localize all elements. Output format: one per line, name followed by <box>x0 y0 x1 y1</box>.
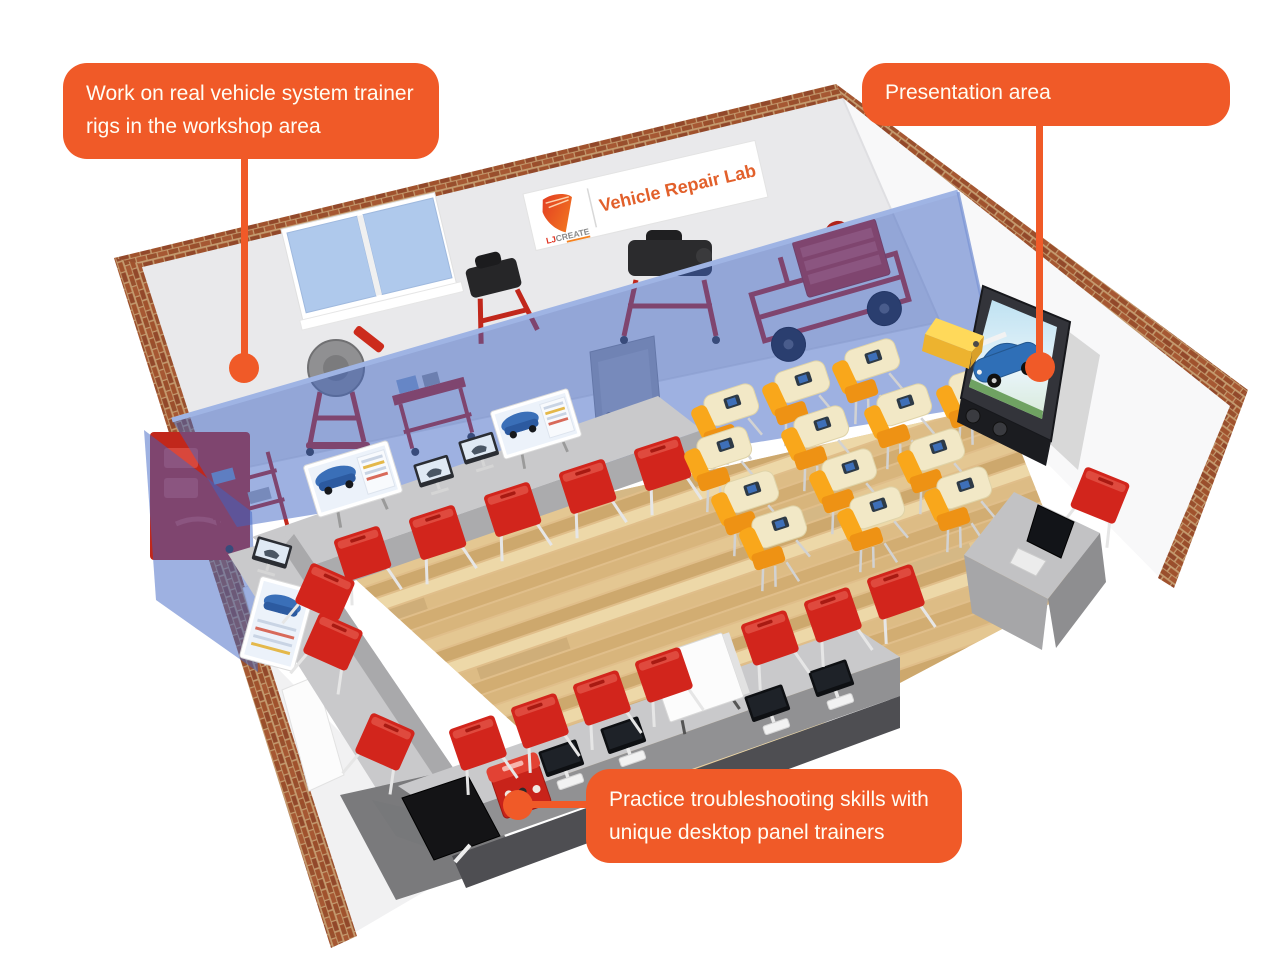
workshop-callout-line <box>241 152 248 368</box>
presentation-callout-text: Presentation area <box>885 77 1207 110</box>
floor-plank-joint <box>645 890 739 932</box>
presentation-callout-line <box>1036 120 1043 367</box>
workshop-callout: Work on real vehicle system trainer rigs… <box>63 63 439 159</box>
workshop-callout-line1: Work on real vehicle system trainer <box>86 78 416 111</box>
trainers-callout-line1: Practice troubleshooting skills with <box>609 784 939 817</box>
trainers-callout: Practice troubleshooting skills with uni… <box>586 769 962 863</box>
trainers-callout-line2: unique desktop panel trainers <box>609 817 939 850</box>
workshop-callout-line2: rigs in the workshop area <box>86 111 416 144</box>
workshop-callout-dot <box>229 353 259 383</box>
vehicle-repair-lab-diagram: LJCREATE Vehicle Repair Lab <box>0 0 1288 960</box>
presentation-callout: Presentation area <box>862 63 1230 126</box>
trainers-callout-dot <box>503 790 533 820</box>
presentation-callout-dot <box>1025 352 1055 382</box>
